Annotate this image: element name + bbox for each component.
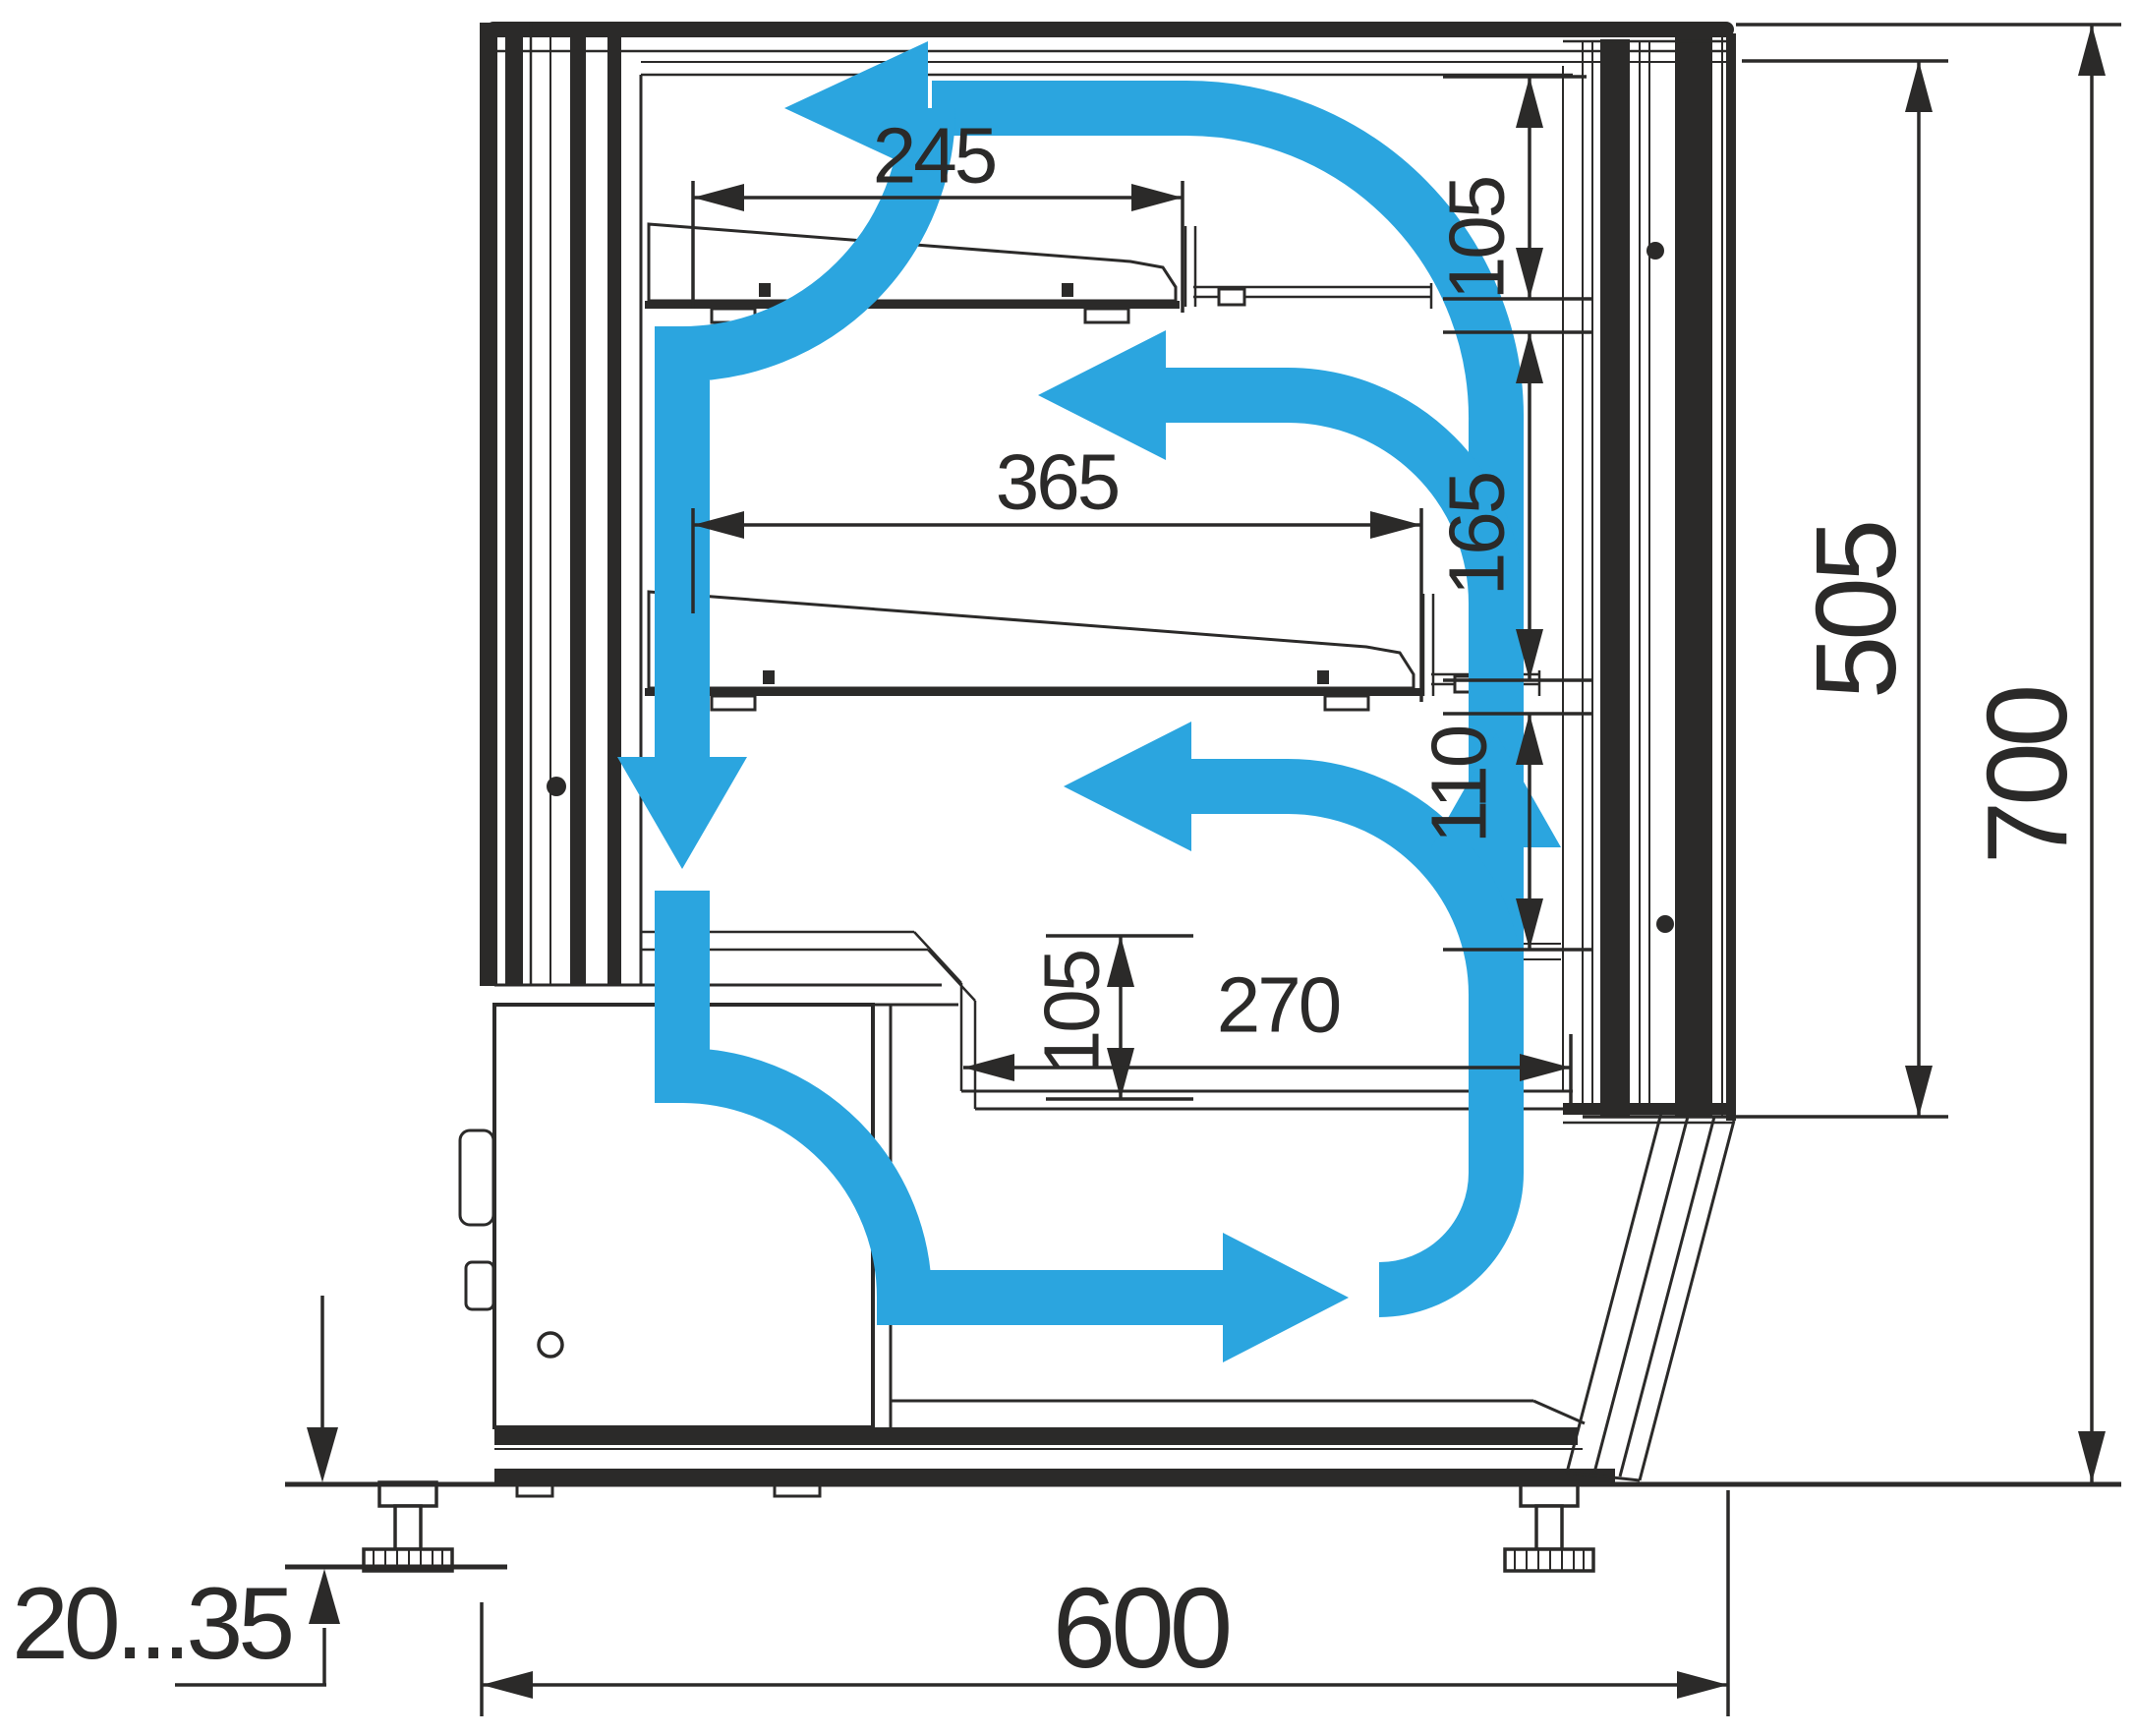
back-wall	[480, 23, 641, 986]
leveling-foot-right	[1505, 1482, 1593, 1571]
compartment-hinge-upper	[460, 1130, 493, 1225]
leveling-foot-left	[364, 1482, 452, 1571]
shelf-lower-clip	[712, 696, 755, 710]
dim-label-leg-adjustment: 20...35	[12, 1567, 291, 1681]
front-frame-screw-top	[1646, 242, 1664, 260]
dim-label-shelf-upper-depth: 245	[873, 112, 996, 200]
airflow-arrow-down-icon	[617, 757, 747, 869]
compartment-hinge-lower	[466, 1262, 493, 1309]
airflow-arrow-right-icon	[1223, 1233, 1349, 1362]
shelf-lower-screw	[763, 670, 775, 684]
shelf-upper-screw	[759, 283, 771, 297]
front-skirt	[1567, 1113, 1661, 1473]
back-wall-screw	[547, 777, 566, 796]
well-step-bevel	[914, 932, 961, 983]
front-frame-post	[1675, 37, 1712, 1117]
technical-drawing-canvas: 245 365 105 165 110 105 270 505 700 600 …	[0, 0, 2137, 1736]
dim-label-clearance-lower: 110	[1415, 726, 1503, 843]
dim-label-overall-height: 700	[1963, 688, 2091, 864]
dim-label-overall-depth: 600	[1053, 1564, 1229, 1692]
dim-label-well-length: 270	[1217, 961, 1340, 1049]
shelf-upper	[645, 224, 1431, 322]
dim-label-clearance-top: 105	[1433, 177, 1521, 300]
dim-label-glass-opening-height: 505	[1792, 523, 1920, 699]
front-frame-screw-bottom	[1656, 915, 1674, 933]
front-glass	[1600, 39, 1630, 1116]
canopy	[486, 22, 1734, 75]
airflow-arrow-low-left-icon	[1064, 722, 1191, 851]
dim-label-well-depth: 105	[1028, 951, 1116, 1073]
dim-label-shelf-lower-depth: 365	[996, 438, 1119, 526]
shelf-lower	[645, 592, 1539, 710]
display-case-cross-section-drawing: 245 365 105 165 110 105 270 505 700 600 …	[0, 0, 2137, 1736]
dim-label-clearance-middle: 165	[1433, 473, 1521, 596]
